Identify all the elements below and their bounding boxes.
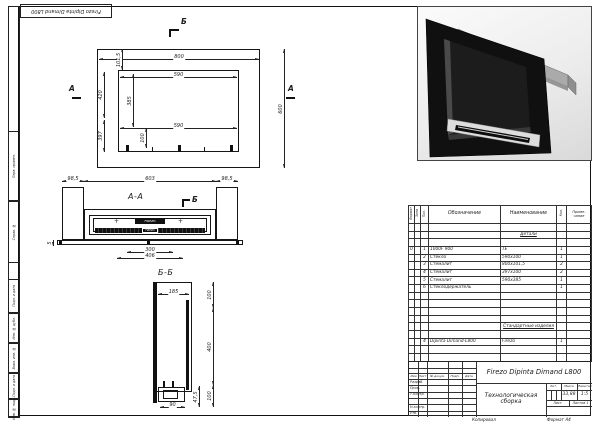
bolt-mark (178, 145, 181, 152)
col-qty: Кол. (557, 206, 567, 224)
dim-label: 100 (141, 132, 146, 144)
line (427, 362, 428, 417)
section-mark-a-line (72, 97, 81, 99)
cross-mark: + (178, 219, 183, 225)
dim-bb-100-bottom: 100 (213, 385, 214, 407)
sig-row-label: Утв. (410, 412, 417, 415)
burner-logo-chip: FIREZO (135, 218, 165, 224)
document-designation: Firezo Dipinta Dimand L800 (487, 369, 582, 376)
stud-mark (163, 381, 165, 387)
margin-cell: Подп. и дата (9, 279, 19, 313)
margin-cell: Инв. № дубл. (9, 313, 19, 343)
sig-row-label: Пров. (410, 387, 420, 390)
table-row: 5Стемалит590х3851 (409, 277, 592, 285)
bolt-mark (230, 145, 233, 152)
dim-front-left-upper: 420 (104, 72, 105, 118)
section-mark-b-line (169, 29, 171, 37)
sheets-label: Листов 1 (569, 402, 592, 405)
bb-burner-inner (163, 390, 178, 399)
margin-cell: Инв. № подл. (9, 399, 19, 417)
section-details: Детали (501, 231, 557, 239)
margin-cell: Подп. и дата (9, 373, 19, 399)
dim-front-opening-top: 590 (120, 77, 237, 78)
col-pos: Поз. (421, 206, 429, 224)
dim-label: 600 (279, 103, 284, 115)
burner-brand-text: FIREZO (144, 219, 155, 223)
bolt-dot (236, 241, 239, 244)
dim-label: 90 (168, 403, 176, 408)
margin-label: Подп. и дата (12, 375, 16, 397)
bb-back-wall (186, 300, 189, 390)
dim-label: 185 (168, 290, 180, 295)
section-aa-label: А-А (128, 193, 143, 201)
margin-label: Взам. инв. № (12, 347, 16, 369)
dim-label: 98,5 (66, 177, 79, 182)
stud-mark (172, 381, 174, 387)
line (551, 390, 552, 401)
dim-label: 385 (128, 95, 133, 107)
margin-cell: Перв. примен. (9, 131, 19, 201)
fireplace-3d-render (418, 7, 591, 160)
dim-label: 590 (173, 73, 185, 78)
dim-label: 47,5 (194, 390, 199, 403)
burner-slot-strip: FIREZO (95, 228, 205, 233)
margin-label: Инв. № дубл. (12, 317, 16, 340)
doc-type-line2: сборка (500, 400, 521, 406)
sig-col-header: Дата (462, 375, 476, 378)
dim-aa-mid: 603 (84, 181, 216, 182)
dim-bb-47-5: 47,5 (199, 386, 200, 407)
dim-label: 400 (208, 341, 213, 353)
line (546, 390, 592, 391)
copied-label: Копировал (472, 418, 496, 422)
mass-value: 33,88 (561, 393, 577, 398)
dim-front-width: 800 (99, 59, 259, 60)
col-note: Приме-чание (567, 206, 592, 224)
dim-label: 100 (208, 289, 213, 301)
section-mark-a-label: А (288, 85, 294, 93)
dim-label: 98,5 (220, 177, 233, 182)
line (546, 406, 592, 407)
dim-bb-400: 400 (213, 308, 214, 385)
dim-bb-90: 90 (160, 407, 185, 408)
dim-label: 406 (144, 254, 156, 259)
designation-cell: Firezo Dipinta Dimand L800 (476, 362, 592, 383)
dim-front-height: 600 (284, 49, 285, 168)
line (448, 362, 449, 417)
dim-aa-left: 98,5 (62, 181, 84, 182)
bb-left-wall (153, 282, 157, 403)
table-row: 011000F 900ТЕ1 (409, 246, 592, 254)
isometric-view (417, 6, 592, 161)
scale-header: Масштаб (577, 385, 592, 388)
dim-label: 100 (208, 390, 213, 402)
sig-col-header: № докум. (427, 375, 448, 378)
section-bb-label: Б-Б (158, 269, 173, 277)
dim-label: 603 (144, 177, 156, 182)
tick-mark (152, 147, 153, 152)
scale-value: 1:5 (577, 393, 592, 398)
margin-label: Перв. примен. (12, 154, 16, 178)
dim-label: 101,5 (117, 51, 122, 67)
burner-strip-label: FIREZO (142, 228, 157, 233)
section-mark-b-label: Б (181, 18, 187, 26)
dim-front-opening-bottom: 590 (120, 128, 237, 129)
sig-col-header: Подп. (448, 375, 462, 378)
dim-bb-185: 185 (158, 294, 189, 295)
line (556, 390, 557, 401)
top-left-stamp: Firezo Dipinta Dimand L800 (20, 4, 112, 18)
margin-label: Справ. № (12, 224, 16, 240)
line (409, 398, 476, 399)
format-label: Формат А4 (547, 418, 571, 422)
dim-front-left-lower: 397 (104, 120, 105, 152)
bolt-mark (126, 145, 129, 152)
margin-label: Подп. и дата (12, 285, 16, 307)
dim-label: 590 (173, 124, 185, 129)
section-header-row: Стандартные изделия (409, 323, 592, 331)
dim-label: 5 (48, 240, 53, 245)
front-opening-rect (118, 70, 239, 152)
aa-left-block (62, 187, 84, 240)
cross-mark: + (114, 219, 119, 225)
section-mark-b-line (182, 199, 190, 201)
col-name: Наименование (501, 206, 557, 224)
lit-header: Лит. (546, 385, 561, 388)
left-margin-column: Перв. примен. Справ. № Подп. и дата Инв.… (8, 6, 20, 418)
section-header-row: Детали (409, 231, 592, 239)
back-box-side (568, 75, 576, 95)
specification-table: Формат Зона Поз. Обозначение Наименовани… (408, 205, 592, 362)
table-row: 4Стемалит397х1002 (409, 269, 592, 277)
section-standard: Стандартные изделия (501, 323, 557, 331)
table-row: 6Стеклодержатель1 (409, 285, 592, 293)
dim-aa-406: 406 (117, 258, 183, 259)
doc-type-cell: Технологическая сборка (476, 383, 546, 417)
table-row: 2Стекло590х1001 (409, 254, 592, 262)
aa-base-plate (57, 240, 243, 245)
stamp-title: Firezo Dipinta Dimand L800 (31, 8, 101, 14)
tick-mark (204, 147, 205, 152)
sheet-label: Лист (546, 402, 569, 405)
line (409, 411, 476, 412)
bolt-dot (59, 241, 62, 244)
sig-col-header: Лист (418, 375, 427, 378)
mass-header: Масса (561, 385, 577, 388)
sig-row-label: Т.контр. (410, 393, 425, 396)
dim-bb-100-top: 100 (213, 282, 214, 308)
section-mark-a-label: А (69, 85, 75, 93)
dim-aa-5: 5 (53, 240, 54, 246)
dim-label: 397 (99, 130, 104, 142)
title-block: Изм. Лист № докум. Подп. Дата Разраб. Пр… (408, 361, 591, 416)
dim-aa-right: 98,5 (216, 181, 238, 182)
dim-front-bottom-strip: 100 (146, 128, 147, 148)
drawing-sheet: Перв. примен. Справ. № Подп. и дата Инв.… (0, 0, 600, 424)
margin-cell: Справ. № (9, 201, 19, 263)
bolt-dot (147, 241, 150, 244)
sig-row-label: Разраб. (410, 381, 423, 384)
line (462, 362, 463, 417)
dim-label: 420 (99, 89, 104, 101)
table-header-row: Формат Зона Поз. Обозначение Наименовани… (409, 206, 592, 224)
dim-front-top-band: 101,5 (122, 49, 123, 70)
col-designation: Обозначение (429, 206, 501, 224)
table-row: 3Стемалит800х101,52 (409, 262, 592, 270)
margin-label: Инв. № подл. (12, 397, 16, 420)
table-row: 4Dipinta Dimand-L800Firezo1 (409, 338, 592, 346)
line (409, 368, 476, 369)
section-mark-b-label: Б (192, 196, 198, 204)
dim-label: 800 (173, 55, 185, 60)
section-mark-a-line (286, 97, 295, 99)
margin-cell: Взам. инв. № (9, 343, 19, 373)
sig-row-label: Н.контр. (410, 406, 425, 409)
aa-right-block (216, 187, 238, 240)
dim-front-opening-height: 385 (133, 74, 134, 127)
